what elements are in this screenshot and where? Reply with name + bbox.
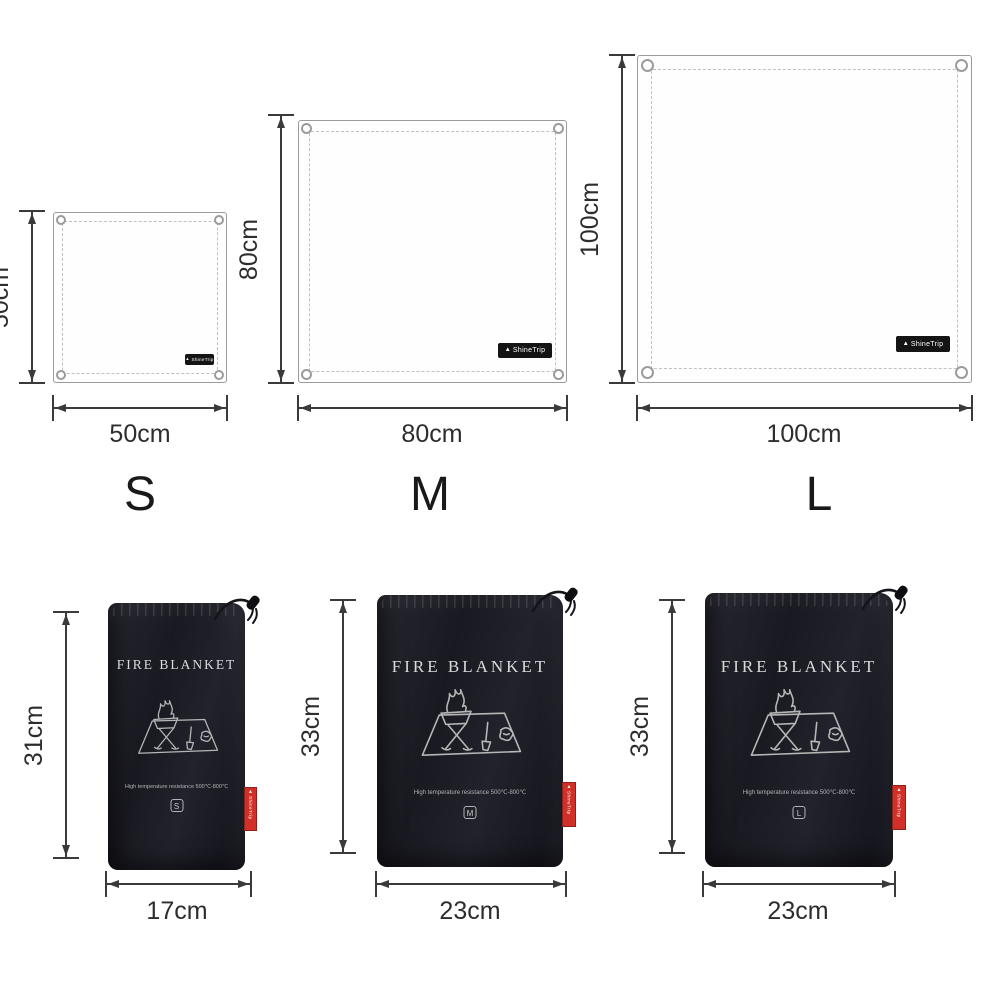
- dim-cap: [659, 852, 685, 854]
- brand-hang-tag: ▲ ShineTrip: [244, 787, 257, 831]
- grommet-icon: [955, 59, 968, 72]
- dim-line: [621, 56, 623, 382]
- bag-subtitle: High temperature resistance 500℃-800℃: [377, 789, 563, 796]
- arrowhead-up-icon: [668, 602, 676, 613]
- arrowhead-down-icon: [62, 845, 70, 856]
- bag-subtitle: High temperature resistance 500℃-800℃: [108, 784, 245, 790]
- tag-brand-text: ShineTrip: [248, 796, 253, 820]
- bag-l-height-label: 33cm: [627, 696, 656, 757]
- grommet-icon: [214, 370, 224, 380]
- stitch-line: [651, 69, 958, 369]
- storage-bag-l: FIRE BLANKET High temperature resistance…: [705, 593, 893, 867]
- dim-line: [377, 883, 565, 885]
- dim-cap: [250, 871, 252, 897]
- arrowhead-right-icon: [554, 404, 565, 412]
- grommet-icon: [301, 123, 312, 134]
- arrowhead-up-icon: [339, 602, 347, 613]
- bag-l-width-label: 23cm: [748, 897, 848, 926]
- mountain-icon: ▲: [185, 357, 189, 361]
- cord-toggle-icon: [209, 589, 269, 635]
- storage-bag-m: FIRE BLANKET High temperature resistance…: [377, 595, 563, 867]
- blanket-m-height-dimension: 80cm: [268, 114, 294, 384]
- arrowhead-down-icon: [28, 370, 36, 381]
- dim-line: [65, 613, 67, 857]
- blanket-s: ▲ ShineTrip: [53, 212, 227, 383]
- arrowhead-up-icon: [62, 614, 70, 625]
- arrowhead-down-icon: [668, 840, 676, 851]
- grommet-icon: [553, 123, 564, 134]
- mountain-icon: ▲: [248, 790, 253, 795]
- arrowhead-left-icon: [378, 880, 389, 888]
- mountain-icon: ▲: [567, 785, 572, 790]
- campfire-stove-mat-illustration: [414, 685, 526, 760]
- bag-size-box: M: [464, 806, 477, 819]
- arrowhead-left-icon: [705, 880, 716, 888]
- bag-s-height-label: 31cm: [21, 704, 50, 765]
- brand-label: ▲ ShineTrip: [185, 354, 214, 365]
- dim-line: [671, 601, 673, 852]
- grommet-icon: [553, 369, 564, 380]
- dim-line: [54, 407, 226, 409]
- bag-size-box: S: [170, 799, 183, 812]
- bag-m-height-label: 33cm: [298, 696, 327, 757]
- stitch-line: [62, 221, 218, 374]
- bag-s-width-dimension: [105, 871, 252, 897]
- dim-cap: [268, 382, 294, 384]
- bag-m-width-label: 23cm: [420, 897, 520, 926]
- arrowhead-left-icon: [300, 404, 311, 412]
- dim-line: [638, 407, 971, 409]
- dim-cap: [894, 871, 896, 897]
- bag-title: FIRE BLANKET: [377, 657, 563, 677]
- mountain-icon: ▲: [903, 341, 909, 347]
- campfire-stove-mat-illustration: [743, 685, 855, 760]
- bag-l-width-dimension: [702, 871, 896, 897]
- cord-toggle-icon: [857, 579, 917, 625]
- mountain-icon: ▲: [505, 347, 511, 353]
- blanket-s-height-label: 50cm: [0, 266, 16, 327]
- brand-label: ▲ ShineTrip: [498, 343, 552, 358]
- dim-cap: [330, 852, 356, 854]
- blanket-l: ▲ ShineTrip: [637, 55, 972, 383]
- blanket-s-height-dimension: 50cm: [19, 210, 45, 384]
- arrowhead-right-icon: [553, 880, 564, 888]
- dim-line: [342, 601, 344, 852]
- campfire-stove-mat-illustration: [132, 697, 222, 757]
- bag-title: FIRE BLANKET: [705, 657, 893, 677]
- dim-line: [299, 407, 566, 409]
- grommet-icon: [301, 369, 312, 380]
- arrowhead-down-icon: [339, 840, 347, 851]
- arrowhead-left-icon: [108, 880, 119, 888]
- blanket-l-width-dimension: [636, 395, 973, 421]
- blanket-m-height-label: 80cm: [236, 218, 265, 279]
- grommet-icon: [56, 215, 66, 225]
- dim-line: [31, 212, 33, 382]
- dim-cap: [566, 395, 568, 421]
- arrowhead-up-icon: [28, 213, 36, 224]
- bag-m-width-dimension: [375, 871, 567, 897]
- arrowhead-up-icon: [618, 57, 626, 68]
- dim-cap: [565, 871, 567, 897]
- mountain-icon: ▲: [897, 788, 902, 793]
- tag-brand-text: ShineTrip: [897, 794, 902, 818]
- blanket-l-width-label: 100cm: [754, 420, 854, 449]
- dim-cap: [226, 395, 228, 421]
- dim-cap: [53, 857, 79, 859]
- fire-blanket-size-infographic: 50cm ▲ ShineTrip 50cm S 80cm ▲: [0, 0, 1002, 1002]
- size-letter-m: M: [400, 467, 460, 522]
- storage-bag-s: FIRE BLANKET High temperature resistance…: [108, 603, 245, 870]
- dim-cap: [971, 395, 973, 421]
- brand-hang-tag: ▲ ShineTrip: [562, 782, 576, 827]
- bag-l-height-dimension: 33cm: [659, 599, 685, 854]
- blanket-s-width-dimension: [52, 395, 228, 421]
- tag-brand-text: ShineTrip: [567, 791, 572, 815]
- brand-name: ShineTrip: [513, 347, 545, 354]
- grommet-icon: [214, 215, 224, 225]
- bag-subtitle: High temperature resistance 500℃-800℃: [705, 789, 893, 796]
- dim-cap: [609, 382, 635, 384]
- size-letter-s: S: [110, 467, 170, 522]
- arrowhead-left-icon: [55, 404, 66, 412]
- arrowhead-right-icon: [214, 404, 225, 412]
- blanket-m-width-label: 80cm: [382, 420, 482, 449]
- cord-toggle-icon: [527, 581, 587, 627]
- dim-line: [107, 883, 250, 885]
- blanket-l-height-label: 100cm: [577, 181, 606, 256]
- dim-line: [280, 116, 282, 382]
- arrowhead-left-icon: [639, 404, 650, 412]
- grommet-icon: [955, 366, 968, 379]
- bag-s-height-dimension: 31cm: [53, 611, 79, 859]
- stitch-line: [309, 131, 556, 372]
- dim-line: [704, 883, 894, 885]
- blanket-s-width-label: 50cm: [90, 420, 190, 449]
- blanket-l-height-dimension: 100cm: [609, 54, 635, 384]
- dim-cap: [19, 382, 45, 384]
- brand-hang-tag: ▲ ShineTrip: [892, 785, 906, 830]
- bag-size-box: L: [793, 806, 806, 819]
- brand-name: ShineTrip: [191, 357, 213, 362]
- grommet-icon: [641, 59, 654, 72]
- brand-label: ▲ ShineTrip: [896, 336, 950, 352]
- arrowhead-down-icon: [618, 370, 626, 381]
- size-letter-l: L: [789, 467, 849, 522]
- grommet-icon: [56, 370, 66, 380]
- bag-s-width-label: 17cm: [127, 897, 227, 926]
- blanket-m-width-dimension: [297, 395, 568, 421]
- arrowhead-up-icon: [277, 117, 285, 128]
- brand-name: ShineTrip: [911, 341, 943, 348]
- grommet-icon: [641, 366, 654, 379]
- arrowhead-down-icon: [277, 370, 285, 381]
- bag-m-height-dimension: 33cm: [330, 599, 356, 854]
- arrowhead-right-icon: [882, 880, 893, 888]
- arrowhead-right-icon: [238, 880, 249, 888]
- arrowhead-right-icon: [959, 404, 970, 412]
- bag-title: FIRE BLANKET: [108, 657, 245, 673]
- blanket-m: ▲ ShineTrip: [298, 120, 567, 383]
